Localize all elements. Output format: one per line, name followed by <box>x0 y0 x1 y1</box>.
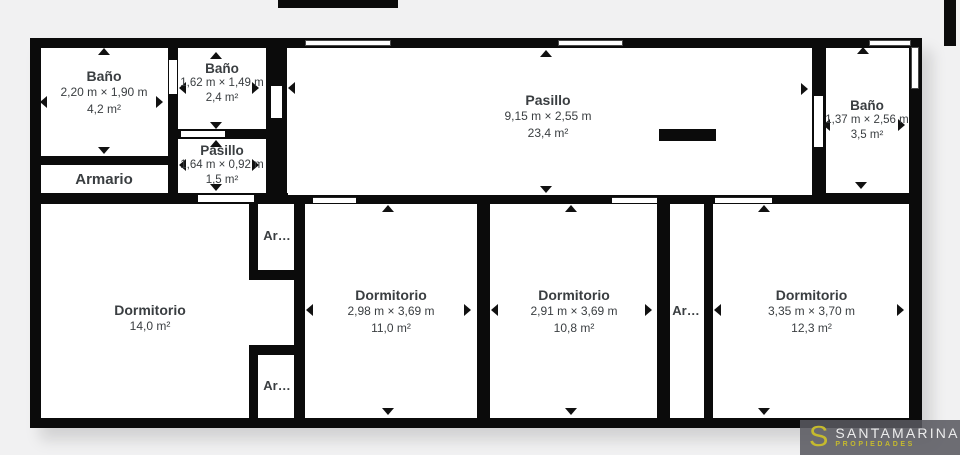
room-label-bano1: Baño 2,20 m × 1,90 m 4,2 m² <box>34 68 174 118</box>
room-dimensions: 2,91 m × 3,69 m <box>490 303 658 320</box>
agency-logo-text: SANTAMARINA PROPIEDADES <box>835 426 959 449</box>
room-name: Baño <box>177 61 267 76</box>
room-name: Dormitorio <box>305 287 477 303</box>
agency-logo-initial-icon: S <box>809 423 828 452</box>
wall-bano3-bottom <box>815 193 910 204</box>
room-name: Baño <box>34 68 174 84</box>
room-dimensions: 1,62 m × 1,49 m <box>177 76 267 91</box>
room-dimensions: 3,35 m × 3,70 m <box>713 303 910 320</box>
door-arrow-up-icon <box>540 50 552 57</box>
floorplan-canvas: Baño 2,20 m × 1,90 m 4,2 m² Baño 1,62 m … <box>0 0 960 455</box>
wall-outer-bottom <box>30 418 922 428</box>
wall-island-pasillo <box>659 129 716 141</box>
window-top-1 <box>305 40 391 46</box>
door-bano2-pasillo <box>181 131 225 137</box>
room-dimensions: 1,64 m × 0,92 m <box>177 158 267 173</box>
room-name: Armario <box>38 168 170 192</box>
door-arrow-up-icon <box>210 52 222 59</box>
door-arrow-right-icon <box>801 83 808 95</box>
room-label-dorm1: Dormitorio 14,0 m² <box>65 302 235 335</box>
room-dimensions: 2,98 m × 3,69 m <box>305 303 477 320</box>
door-arrow-up-icon <box>382 205 394 212</box>
room-label-closet1: Ar… <box>255 228 299 244</box>
room-area: 10,8 m² <box>490 320 658 337</box>
room-dimensions: 9,15 m × 2,55 m <box>448 108 648 125</box>
wall-stub-top <box>278 0 398 8</box>
wall-closet2-top <box>249 345 305 355</box>
door-pasillo-left <box>271 86 282 118</box>
door-arrow-down-icon <box>98 147 110 154</box>
room-label-dorm4: Dormitorio 3,35 m × 3,70 m 12,3 m² <box>713 287 910 337</box>
wall-dorm2-dorm3 <box>477 204 490 418</box>
room-name: Dormitorio <box>713 287 910 303</box>
door-arrow-down-icon <box>855 182 867 189</box>
window-right <box>911 47 919 89</box>
wall-bano1-bottom <box>30 156 178 165</box>
room-area: 14,0 m² <box>65 318 235 335</box>
room-label-dorm3: Dormitorio 2,91 m × 3,69 m 10,8 m² <box>490 287 658 337</box>
room-area: 11,0 m² <box>305 320 477 337</box>
room-name: Pasillo <box>177 143 267 158</box>
room-area: 12,3 m² <box>713 320 910 337</box>
door-arrow-down-icon <box>210 122 222 129</box>
door-arrow-down-icon <box>565 408 577 415</box>
room-label-dorm2: Dormitorio 2,98 m × 3,69 m 11,0 m² <box>305 287 477 337</box>
agency-tagline: PROPIEDADES <box>835 441 959 449</box>
wall-outer-right <box>909 38 922 428</box>
room-name: Ar… <box>255 228 299 244</box>
agency-brand-name: SANTAMARINA <box>835 426 959 441</box>
room-label-bano3: Baño 1,37 m × 2,56 m 3,5 m² <box>821 98 913 143</box>
window-top-3 <box>869 40 911 46</box>
agency-logo: S SANTAMARINA PROPIEDADES <box>800 420 960 455</box>
room-area: 2,4 m² <box>177 91 267 106</box>
room-label-pasillo-small: Pasillo 1,64 m × 0,92 m 1,5 m² <box>177 143 267 188</box>
window-top-2 <box>558 40 623 46</box>
room-name: Dormitorio <box>490 287 658 303</box>
room-label-pasillo-main: Pasillo 9,15 m × 2,55 m 23,4 m² <box>448 92 648 142</box>
room-name: Ar… <box>255 378 299 394</box>
room-area: 23,4 m² <box>448 125 648 142</box>
room-label-armario: Armario <box>38 168 170 192</box>
room-name: Dormitorio <box>65 302 235 318</box>
room-dimensions: 1,37 m × 2,56 m <box>821 113 913 128</box>
door-arrow-up-icon <box>565 205 577 212</box>
door-arrow-down-icon <box>758 408 770 415</box>
door-arrow-left-icon <box>288 82 295 94</box>
room-name: Baño <box>821 98 913 113</box>
door-pasillo-dorm4 <box>715 197 772 203</box>
room-dimensions: 2,20 m × 1,90 m <box>34 84 174 101</box>
room-name: Pasillo <box>448 92 648 108</box>
door-arrow-up-icon <box>857 47 869 54</box>
wall-closet1-bottom <box>249 270 305 280</box>
door-arrow-down-icon <box>382 408 394 415</box>
room-label-closet2: Ar… <box>255 378 299 394</box>
room-label-bano2: Baño 1,62 m × 1,49 m 2,4 m² <box>177 61 267 106</box>
room-area: 1,5 m² <box>177 173 267 188</box>
door-pasillo-dorm2 <box>313 197 356 203</box>
room-name: Ar… <box>664 303 708 319</box>
wall-stub-top-right <box>944 0 956 46</box>
room-label-closet3: Ar… <box>664 303 708 319</box>
door-pasillo-dorm1 <box>198 195 254 202</box>
door-arrow-up-icon <box>758 205 770 212</box>
room-area: 3,5 m² <box>821 128 913 143</box>
room-area: 4,2 m² <box>34 101 174 118</box>
door-pasillo-dorm3 <box>612 197 657 203</box>
wall-bano2-right <box>266 38 287 204</box>
door-arrow-down-icon <box>540 186 552 193</box>
wall-outer-top <box>30 38 922 48</box>
door-arrow-up-icon <box>98 48 110 55</box>
